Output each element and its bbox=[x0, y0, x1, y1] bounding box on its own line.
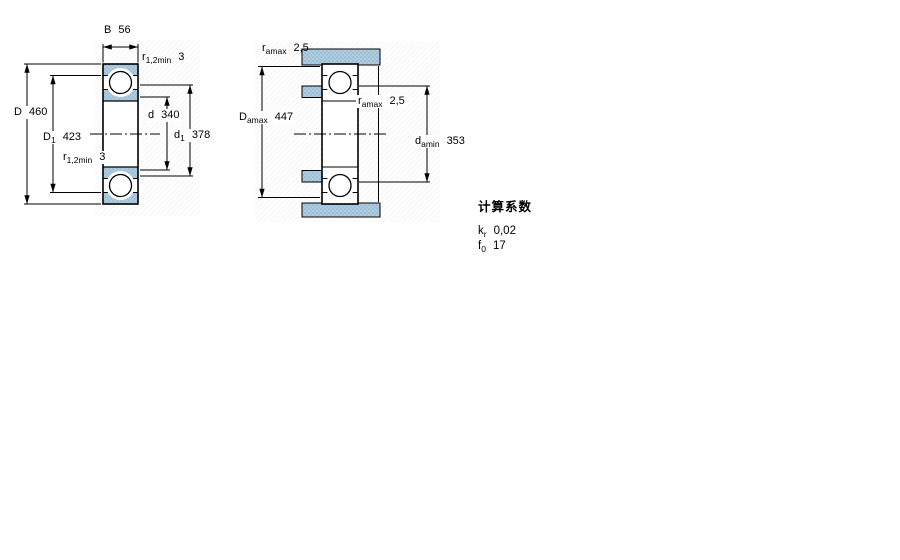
ball-bottom-right bbox=[329, 175, 351, 197]
dim-label-D: D460 bbox=[12, 106, 49, 119]
bearing-drawing-page: B56 r1,2min3 D460 D1423 r1,2min3 d340 d1… bbox=[0, 0, 900, 560]
dim-label-D1: D1423 bbox=[41, 131, 83, 144]
ball-top bbox=[110, 72, 132, 94]
dim-label-r-bottom: r1,2min3 bbox=[61, 151, 107, 164]
dim-label-B: B56 bbox=[104, 24, 131, 37]
dim-label-Damax: Damax447 bbox=[237, 111, 295, 124]
ball-top-right bbox=[329, 72, 351, 94]
dim-label-ra-top: ramax2,5 bbox=[262, 42, 309, 55]
housing-top bbox=[302, 49, 380, 65]
ball-bottom bbox=[110, 175, 132, 197]
dim-label-d: d340 bbox=[146, 109, 181, 122]
bearing-drawing-svg bbox=[0, 0, 900, 560]
dim-label-d1: d1378 bbox=[172, 129, 212, 142]
factor-row-kr: kr0,02 bbox=[478, 224, 532, 239]
dim-label-r-top: r1,2min3 bbox=[142, 51, 184, 64]
housing-bottom bbox=[302, 203, 380, 217]
dim-label-damin: damin353 bbox=[413, 135, 467, 148]
dim-label-ra-mid: ramax2,5 bbox=[356, 95, 407, 108]
shaft-shoulder-bottom bbox=[302, 171, 322, 183]
calculation-factors-title: 计算系数 bbox=[478, 196, 532, 215]
factor-row-f0: f017 bbox=[478, 239, 532, 254]
calculation-factors: 计算系数 kr0,02 f017 bbox=[478, 196, 532, 253]
shaft-shoulder-top bbox=[302, 86, 322, 98]
